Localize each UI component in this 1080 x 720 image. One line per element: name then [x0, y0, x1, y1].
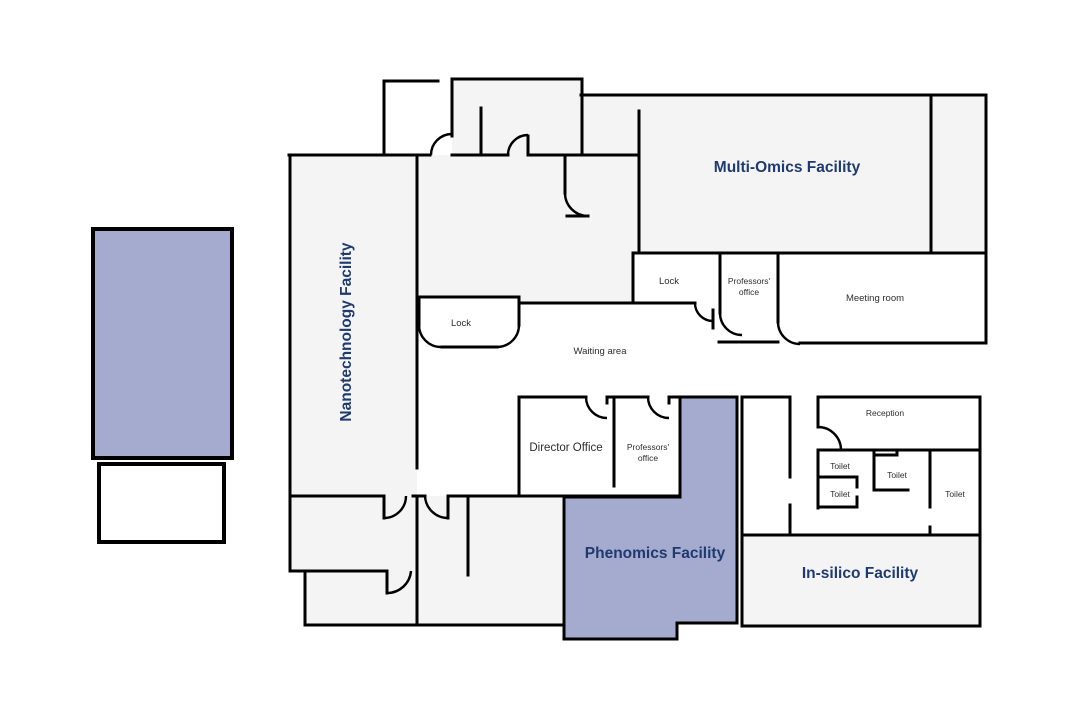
- phenomics-room: [564, 397, 737, 639]
- top-gray-room-fill: [452, 79, 582, 155]
- toilet-3-label: Toilet: [887, 470, 907, 480]
- in-silico-label: In-silico Facility: [802, 565, 919, 582]
- floor-plan-page: Nanotechnology Facility Multi-Omics Faci…: [0, 0, 1080, 720]
- reception-door-arc: [818, 427, 841, 450]
- top-left-white-room-walls: [384, 81, 438, 155]
- professors-office-top-label-line1: Professors': [728, 276, 771, 286]
- nanotechnology-label: Nanotechnology Facility: [338, 242, 355, 422]
- director-office-label: Director Office: [529, 442, 602, 454]
- lock-top-label: Lock: [659, 276, 679, 287]
- professors-office-top-label-line2: office: [739, 287, 759, 297]
- reception-label: Reception: [866, 408, 905, 418]
- annex-blocks: [93, 229, 232, 542]
- office-row-door-arcs: [695, 303, 800, 344]
- bottom-left-room-a-fill: [290, 496, 418, 571]
- annex-white-block: [99, 464, 224, 542]
- bottom-left-room-b-fill: [305, 571, 418, 625]
- office-row-walls: [633, 253, 986, 343]
- waiting-area-label: Waiting area: [574, 346, 628, 357]
- toilet-1-label: Toilet: [830, 461, 850, 471]
- annex-highlight-block: [93, 229, 232, 458]
- multi-omics-label: Multi-Omics Facility: [714, 159, 861, 176]
- central-block-fill: [417, 155, 639, 303]
- lock-middle-label: Lock: [451, 318, 471, 329]
- phenomics-label: Phenomics Facility: [585, 545, 726, 562]
- professors-office-middle-label-line1: Professors': [627, 442, 670, 452]
- floor-plan-svg: Nanotechnology Facility Multi-Omics Faci…: [0, 0, 1080, 720]
- director-door-arcs: [586, 397, 669, 418]
- corridor-walls: [742, 397, 790, 535]
- meeting-room-label: Meeting room: [846, 293, 904, 304]
- toilet-4-label: Toilet: [945, 489, 965, 499]
- toilet-2-label: Toilet: [830, 489, 850, 499]
- professors-office-middle-label-line2: office: [638, 453, 658, 463]
